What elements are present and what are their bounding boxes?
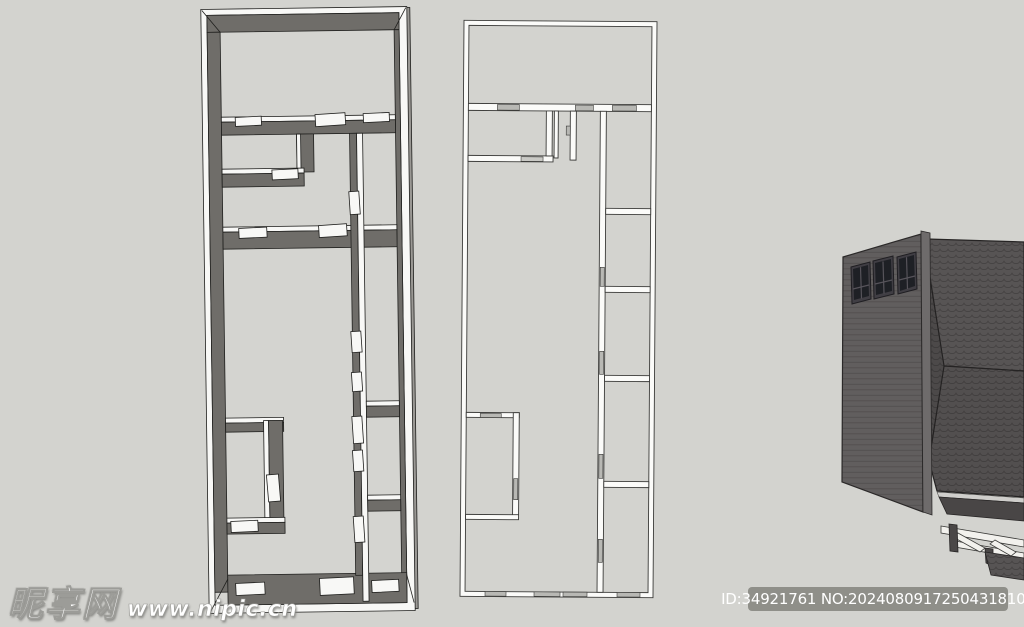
door-marker <box>600 267 604 286</box>
door-marker <box>315 113 346 127</box>
gable-wall-edge <box>921 231 932 515</box>
wall <box>606 208 651 214</box>
door-marker <box>514 479 518 500</box>
door-marker <box>521 157 543 162</box>
door-marker <box>352 416 364 444</box>
door-marker <box>617 592 640 597</box>
door-marker <box>319 577 354 596</box>
top-wall-face <box>207 13 399 33</box>
porch-post <box>949 524 958 552</box>
image-id-text: ID:34921761 NO:20240809172504318101 <box>721 590 1024 608</box>
window <box>873 256 894 299</box>
door-marker <box>563 592 587 597</box>
door-marker <box>566 126 570 135</box>
wall <box>513 413 520 519</box>
door-marker <box>319 224 348 238</box>
wall-top-face <box>368 495 401 500</box>
door-marker <box>599 454 603 478</box>
door-marker <box>534 592 560 597</box>
wall-face <box>366 406 399 417</box>
floor-plan-3d <box>201 7 418 614</box>
door-marker <box>575 105 593 111</box>
window <box>851 262 871 304</box>
wall <box>546 111 552 156</box>
door-marker <box>372 579 400 592</box>
door-marker <box>239 227 267 238</box>
door-marker <box>353 516 365 543</box>
door-marker <box>231 520 259 532</box>
wall <box>604 375 649 381</box>
door-marker <box>612 105 636 111</box>
door-marker <box>352 450 363 472</box>
wall-top-face <box>366 401 399 406</box>
wall <box>554 111 558 158</box>
roof-lower-shade <box>929 366 1024 497</box>
image-id-badge: ID:34921761 NO:20240809172504318101 <box>748 587 1008 611</box>
door-marker <box>272 169 298 180</box>
house-model <box>842 231 1024 580</box>
wall-top-face <box>297 134 302 172</box>
door-marker <box>266 474 280 502</box>
floor <box>207 13 407 606</box>
door-marker <box>485 591 506 596</box>
door-marker <box>600 351 604 374</box>
wall <box>604 481 649 487</box>
wall <box>466 514 519 519</box>
floor-plan-outline <box>460 20 657 597</box>
door-marker <box>235 116 261 126</box>
door-marker <box>351 372 362 392</box>
door-marker <box>598 539 602 562</box>
door-marker <box>480 413 501 417</box>
door-marker <box>497 105 519 111</box>
window <box>897 252 917 294</box>
scene-canvas <box>0 0 1024 626</box>
wall <box>605 286 650 292</box>
door-marker <box>363 112 389 122</box>
door-marker <box>351 331 362 353</box>
wall-face <box>269 420 284 524</box>
door-marker <box>236 582 266 595</box>
page: { "watermark": { "site_name": "昵享网", "si… <box>0 0 1024 626</box>
wall-face <box>368 500 401 511</box>
wall <box>570 111 576 160</box>
door-marker <box>349 191 361 215</box>
